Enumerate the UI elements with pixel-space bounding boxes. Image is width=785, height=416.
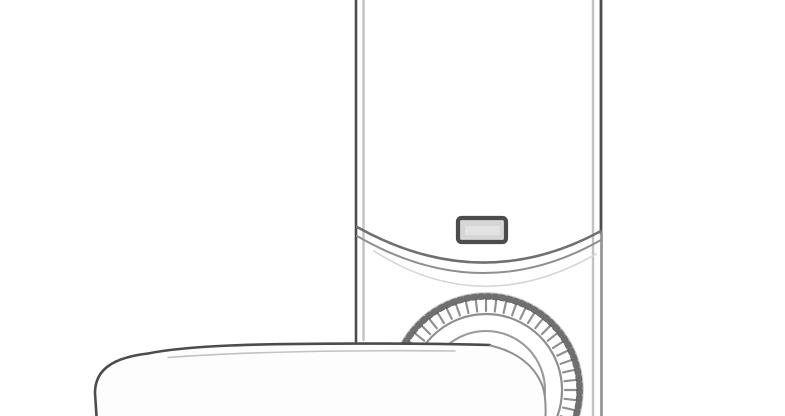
product-image bbox=[0, 0, 785, 416]
dial-knurl-tick bbox=[565, 380, 577, 381]
keyway-cover-highlight bbox=[465, 226, 500, 235]
lock-drawing-svg bbox=[0, 0, 785, 416]
dial-knurl-tick bbox=[495, 300, 496, 312]
dial-knurl-tick bbox=[565, 399, 577, 400]
dial-knurl-tick bbox=[476, 300, 477, 312]
lever-handle bbox=[94, 344, 546, 416]
